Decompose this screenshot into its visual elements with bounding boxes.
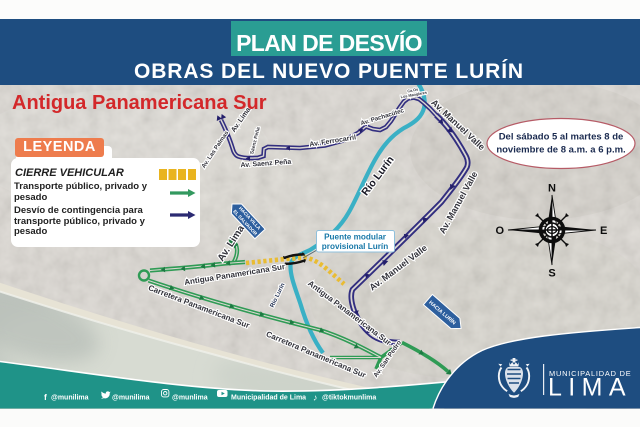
svg-text:LIMA: LIMA [548, 374, 632, 402]
svg-text:@tiktokmunlima: @tiktokmunlima [322, 395, 376, 402]
svg-text:Municipalidad de Lima: Municipalidad de Lima [231, 395, 306, 402]
svg-text:♪: ♪ [313, 393, 318, 403]
svg-text:f: f [44, 392, 47, 402]
svg-text:noviembre de 8 a.m. a 6 p.m.: noviembre de 8 a.m. a 6 p.m. [496, 145, 625, 156]
svg-text:provisional Lurín: provisional Lurín [322, 242, 388, 251]
svg-text:E: E [600, 225, 607, 237]
svg-text:@munilima: @munilima [51, 395, 89, 402]
svg-text:Del sábado 5 al martes 8 de: Del sábado 5 al martes 8 de [499, 132, 624, 143]
svg-text:S: S [548, 268, 555, 280]
svg-text:O: O [495, 225, 504, 237]
svg-text:Puente modular: Puente modular [324, 233, 387, 242]
svg-text:N: N [548, 183, 556, 195]
svg-text:@munilima: @munilima [112, 395, 150, 402]
svg-text:@munlima: @munlima [172, 395, 208, 402]
